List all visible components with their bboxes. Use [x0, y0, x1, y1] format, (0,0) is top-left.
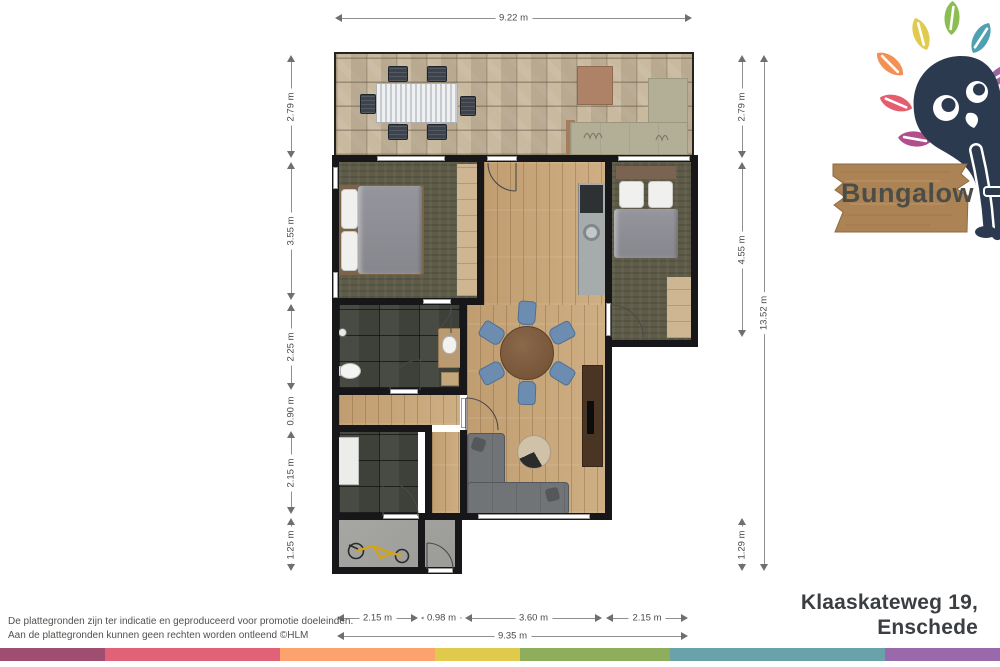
palette-segment	[885, 648, 1000, 661]
dim-label: 1.25 m	[286, 526, 297, 563]
vanity-basin	[442, 336, 457, 354]
utility-appliance	[338, 437, 359, 485]
terrace-chair	[460, 96, 476, 116]
terrace-chair	[388, 124, 408, 140]
dim-label: 3.55 m	[286, 212, 297, 249]
dim-label: 2.79 m	[286, 88, 297, 125]
dim-left-3: 2.25 m	[285, 304, 297, 390]
palette-segment	[280, 648, 435, 661]
disclaimer-line-2: Aan de plattegronden kunnen geen rechten…	[8, 629, 353, 643]
brand-sign-label: Bungalow	[841, 178, 959, 209]
terrace-chair	[427, 66, 447, 82]
dim-left-2: 3.55 m	[285, 162, 297, 300]
wall	[477, 162, 484, 305]
dim-bottom-4: 2.15 m	[606, 612, 688, 624]
dining-table-round	[500, 326, 554, 380]
storage-floor	[339, 520, 455, 567]
hallway-floor	[339, 395, 460, 425]
wall	[460, 430, 467, 520]
bed-pillow	[341, 189, 358, 229]
terrace-lounge-sofa	[570, 122, 688, 155]
leaf-icon	[908, 15, 934, 52]
door-opening	[606, 303, 611, 336]
dining-chair	[518, 381, 537, 406]
bed-pillow	[341, 231, 358, 271]
dim-label: 4.55 m	[737, 231, 748, 268]
toilet	[339, 363, 361, 379]
terrace-chair	[427, 124, 447, 140]
dim-right-2: 4.55 m	[736, 162, 748, 337]
dim-label: 0.98 m	[423, 613, 460, 624]
window	[333, 272, 338, 298]
leaf-icon	[872, 47, 908, 80]
address-line-1: Klaaskateweg 19,	[801, 590, 978, 615]
property-address: Klaaskateweg 19, Enschede	[801, 590, 978, 640]
terrace-chair	[388, 66, 408, 82]
bed-pillow	[619, 181, 644, 208]
dim-left-5: 2.15 m	[285, 431, 297, 514]
bedroom-2-wardrobe	[667, 277, 691, 338]
leaf-icon	[966, 19, 995, 56]
window	[478, 514, 590, 519]
dim-left-4: 0.90 m	[285, 394, 297, 427]
window	[333, 167, 338, 189]
wall	[612, 340, 698, 347]
palette-segment	[435, 648, 520, 661]
bed-duvet	[358, 186, 422, 274]
bedroom-1-closet	[457, 164, 477, 296]
shower-head	[338, 328, 347, 337]
dim-label: 0.90 m	[286, 392, 297, 429]
window	[618, 156, 690, 161]
floorplan-page: { "brand": { "name": "Bungalow", "mascot…	[0, 0, 1000, 667]
door-opening	[423, 299, 451, 304]
wall	[605, 162, 612, 520]
dim-bottom-2: 0.98 m	[421, 612, 462, 624]
dim-label: 2.79 m	[737, 88, 748, 125]
dim-label: 2.15 m	[359, 613, 396, 624]
brand-logo	[820, 0, 1000, 250]
door-opening	[390, 389, 418, 394]
corridor-floor	[432, 432, 460, 513]
dim-label: 1.29 m	[737, 526, 748, 563]
bed-pillow	[648, 181, 673, 208]
dim-right-total: 13.52 m	[758, 55, 770, 571]
wall	[455, 513, 462, 574]
palette-segment	[670, 648, 885, 661]
dim-label: 9.22 m	[495, 13, 532, 24]
dim-right-3: 1.29 m	[736, 518, 748, 571]
address-line-2: Enschede	[801, 615, 978, 640]
palette-segment	[520, 648, 670, 661]
door-opening	[461, 398, 466, 428]
tv-screen	[587, 401, 594, 434]
terrace-chair	[360, 94, 376, 114]
dim-label: 3.60 m	[515, 613, 552, 624]
wall	[460, 305, 467, 395]
leaf-icon	[944, 1, 960, 36]
side-table-round	[517, 435, 551, 469]
dim-label: 13.52 m	[759, 292, 770, 334]
bed-duvet	[614, 209, 678, 258]
terrace-dining-table	[376, 83, 458, 123]
dim-left-6: 1.25 m	[285, 518, 297, 571]
window	[377, 156, 445, 161]
dim-right-1: 2.79 m	[736, 55, 748, 158]
kitchen-sink	[583, 224, 600, 241]
bedroom-2-headboard	[616, 166, 676, 179]
dim-label: 2.15 m	[628, 613, 665, 624]
dining-chair	[517, 300, 537, 325]
palette-segment	[105, 648, 280, 661]
dim-left-1: 2.79 m	[285, 55, 297, 158]
dim-label: 2.15 m	[286, 454, 297, 491]
terrace-lounge-sofa	[648, 78, 688, 124]
dim-bottom-total: 9.35 m	[337, 630, 688, 642]
wall	[332, 425, 432, 432]
brand-palette-bar	[0, 648, 1000, 661]
terrace-door-opening	[487, 156, 517, 161]
palette-segment	[0, 648, 105, 661]
wall	[425, 432, 432, 520]
terrace-coffee-table	[577, 66, 613, 105]
disclaimer-line-1: De plattegronden zijn ter indicatie en g…	[8, 615, 353, 629]
kitchen-cooktop	[580, 185, 603, 213]
door-opening	[428, 568, 453, 573]
dim-bottom-3: 3.60 m	[465, 612, 602, 624]
wall	[418, 520, 425, 567]
dim-top-total: 9.22 m	[335, 12, 692, 24]
door-opening	[383, 514, 419, 519]
dim-label: 9.35 m	[494, 631, 531, 642]
bathroom-shelf	[441, 372, 459, 386]
disclaimer: De plattegronden zijn ter indicatie en g…	[8, 615, 353, 643]
wall	[691, 162, 698, 347]
dim-label: 2.25 m	[286, 328, 297, 365]
wall	[332, 298, 484, 305]
leaf-icon	[878, 91, 915, 116]
